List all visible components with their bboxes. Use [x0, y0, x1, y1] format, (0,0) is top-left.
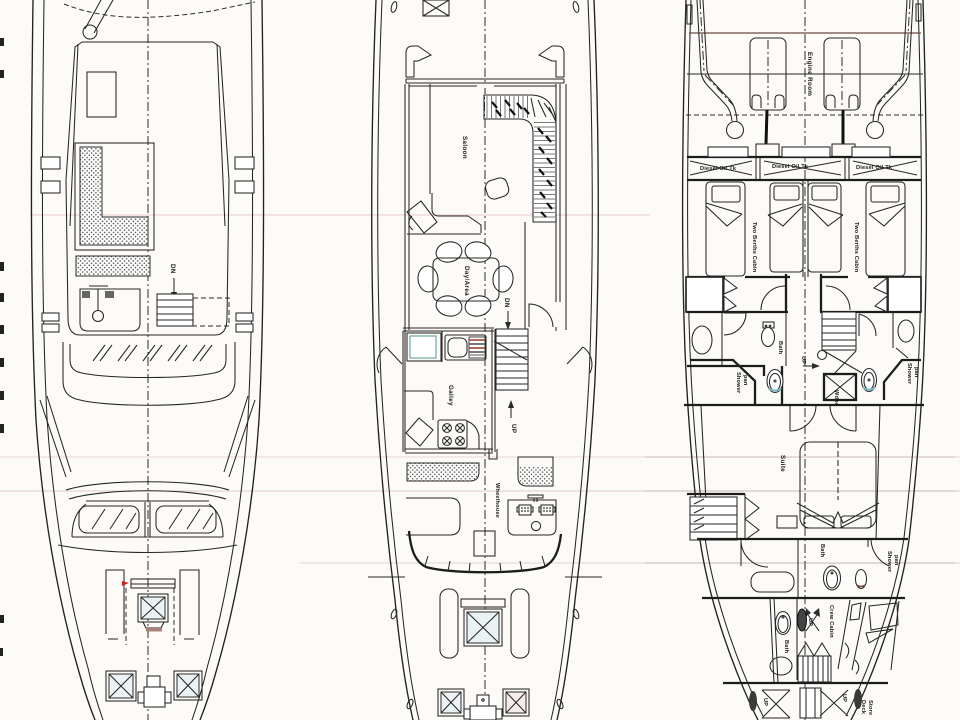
svg-text:Diesel Oil Tk: Diesel Oil Tk — [856, 165, 893, 171]
svg-text:Galley: Galley — [447, 385, 454, 406]
svg-text:DN: DN — [503, 298, 510, 308]
svg-text:Day/Area: Day/Area — [463, 266, 470, 296]
svg-text:Two Berths Cabin: Two Berths Cabin — [853, 222, 859, 273]
svg-text:Shower: Shower — [735, 372, 741, 394]
svg-text:Wheelhouse: Wheelhouse — [494, 483, 500, 518]
svg-text:Diesel Oil Tk: Diesel Oil Tk — [700, 166, 737, 172]
svg-text:Diesel Oil Tk: Diesel Oil Tk — [772, 164, 809, 170]
svg-text:pan: pan — [742, 375, 748, 386]
svg-text:Bath: Bath — [819, 544, 825, 558]
svg-text:Engine Room: Engine Room — [806, 52, 813, 96]
svg-text:Crew Cabin: Crew Cabin — [828, 605, 834, 638]
svg-text:Wdbe: Wdbe — [833, 390, 839, 406]
svg-text:Store: Store — [867, 700, 873, 715]
svg-text:UP: UP — [800, 356, 806, 364]
svg-text:Two Berths Cabin: Two Berths Cabin — [751, 222, 757, 273]
svg-text:UP: UP — [807, 618, 813, 626]
svg-text:Bath: Bath — [783, 640, 789, 654]
svg-text:pan: pan — [913, 367, 919, 378]
svg-text:Suite: Suite — [779, 455, 786, 472]
svg-text:UP: UP — [510, 424, 517, 433]
svg-text:Deck: Deck — [860, 700, 866, 715]
svg-text:DN: DN — [169, 264, 176, 274]
svg-text:Shower: Shower — [886, 551, 892, 573]
svg-text:Saloon: Saloon — [461, 136, 468, 159]
svg-text:Shower: Shower — [906, 363, 912, 385]
svg-text:pan: pan — [893, 555, 899, 566]
svg-text:UP: UP — [762, 698, 768, 706]
svg-text:UP: UP — [841, 694, 847, 702]
svg-text:Bath: Bath — [777, 341, 783, 355]
